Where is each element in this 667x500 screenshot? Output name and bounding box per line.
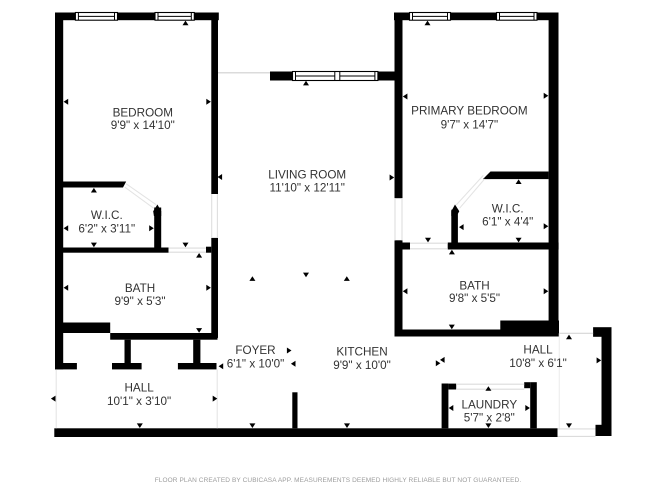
svg-text:BEDROOM: BEDROOM: [113, 106, 173, 119]
svg-text:9'7" x 14'7": 9'7" x 14'7": [441, 119, 499, 132]
svg-text:LAUNDRY: LAUNDRY: [461, 398, 517, 411]
svg-text:HALL: HALL: [124, 382, 154, 395]
svg-text:BATH: BATH: [125, 282, 155, 295]
svg-text:LIVING ROOM: LIVING ROOM: [268, 169, 346, 182]
svg-text:W.I.C.: W.I.C.: [91, 209, 123, 222]
svg-text:9'9" x 10'0": 9'9" x 10'0": [333, 359, 391, 372]
svg-text:9'8" x 5'5": 9'8" x 5'5": [449, 292, 500, 305]
svg-text:6'1" x 4'4": 6'1" x 4'4": [482, 216, 533, 229]
svg-text:W.I.C.: W.I.C.: [492, 203, 524, 216]
svg-text:6'2" x 3'11": 6'2" x 3'11": [78, 222, 135, 235]
svg-text:FOYER: FOYER: [235, 344, 275, 357]
svg-text:10'8" x 6'1": 10'8" x 6'1": [509, 357, 567, 370]
svg-text:9'9" x 5'3": 9'9" x 5'3": [114, 295, 165, 308]
svg-text:HALL: HALL: [523, 344, 553, 357]
svg-text:5'7" x 2'8": 5'7" x 2'8": [464, 412, 515, 425]
svg-text:PRIMARY BEDROOM: PRIMARY BEDROOM: [411, 105, 527, 118]
svg-text:FLOOR PLAN CREATED BY CUBICASA: FLOOR PLAN CREATED BY CUBICASA APP. MEAS…: [155, 477, 522, 484]
svg-text:BATH: BATH: [459, 280, 489, 293]
svg-text:10'1" x 3'10": 10'1" x 3'10": [107, 395, 171, 408]
svg-text:KITCHEN: KITCHEN: [336, 346, 387, 359]
svg-text:9'9" x 14'10": 9'9" x 14'10": [111, 119, 175, 132]
svg-text:6'1" x 10'0": 6'1" x 10'0": [227, 358, 285, 371]
svg-text:11'10" x 12'11": 11'10" x 12'11": [270, 181, 345, 194]
